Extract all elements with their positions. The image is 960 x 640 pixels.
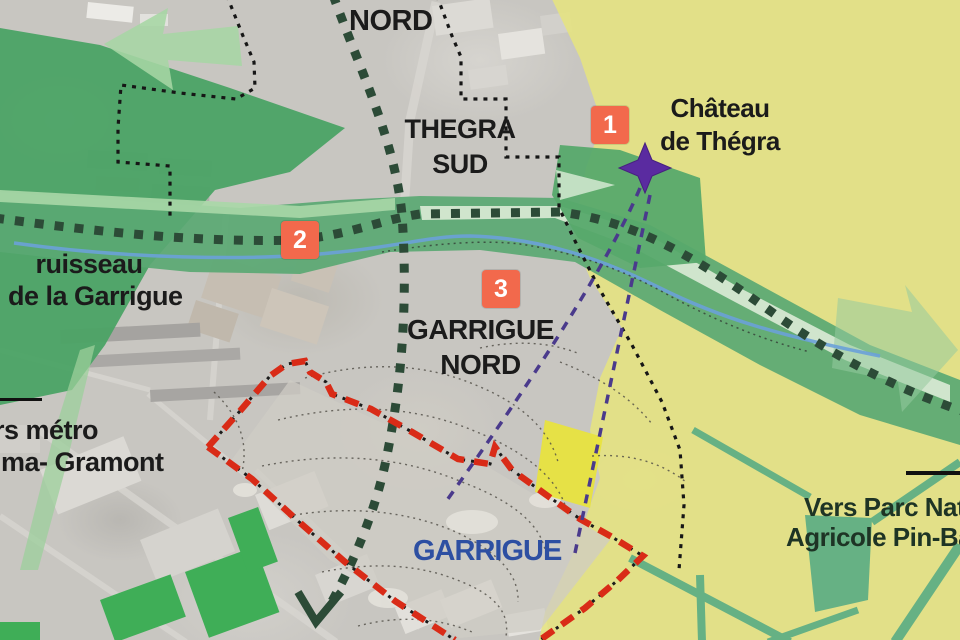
label-garrigue-nord-line2: NORD — [398, 347, 563, 382]
label-nord: NORD — [349, 4, 432, 39]
label-thegra-sud-line1: THEGRA — [375, 112, 545, 147]
label-chateau-line2: de Thégra — [630, 125, 810, 158]
label-chateau-line1: Château — [630, 92, 810, 125]
label-parc-line2: Agricole Pin-Balm — [786, 522, 960, 553]
label-thegra-sud-line2: SUD — [375, 147, 545, 182]
label-ruisseau: ruisseau de la Garrigue — [8, 248, 170, 313]
label-garrigue-nord-line1: GARRIGUE — [398, 312, 563, 347]
marker-3: 3 — [482, 270, 520, 308]
label-chateau: Château de Thégra — [630, 92, 810, 157]
map-canvas: NORD THEGRA SUD Château de Thégra ruisse… — [0, 0, 960, 640]
label-ruisseau-line1: ruisseau — [8, 248, 170, 280]
label-metro-line2: lma- Gramont — [0, 446, 164, 478]
green-parcel-4 — [0, 622, 40, 640]
label-thegra-sud: THEGRA SUD — [375, 112, 545, 182]
label-garrigue: GARRIGUE — [413, 534, 561, 569]
leader-line-parc — [906, 471, 960, 475]
leader-line-metro — [0, 398, 42, 401]
label-garrigue-nord: GARRIGUE NORD — [398, 312, 563, 382]
label-metro-line1: rs métro — [0, 414, 98, 446]
marker-2: 2 — [281, 221, 319, 259]
label-parc-line1: Vers Parc Natur — [804, 492, 960, 523]
marker-1: 1 — [591, 106, 629, 144]
hedgerow-5 — [700, 575, 702, 640]
label-ruisseau-line2: de la Garrigue — [8, 280, 170, 312]
